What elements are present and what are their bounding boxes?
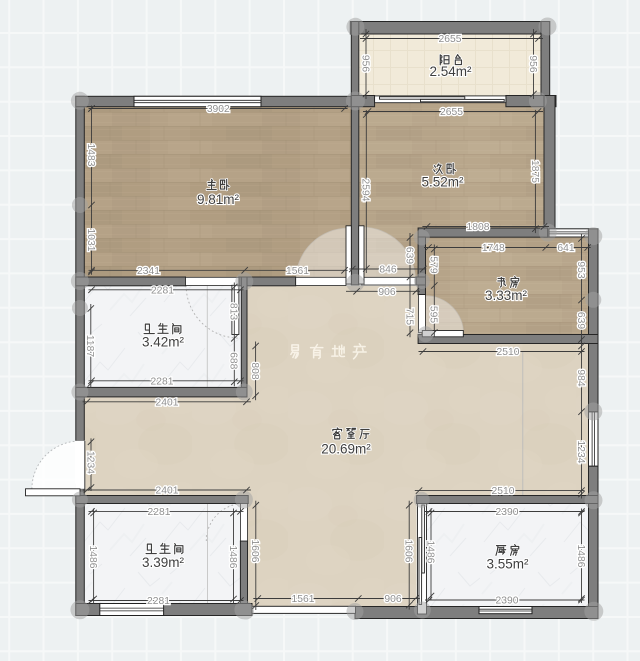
svg-text:3.55m²: 3.55m² — [486, 557, 529, 572]
svg-text:1486: 1486 — [575, 545, 586, 568]
svg-text:579: 579 — [428, 256, 439, 273]
svg-text:3.42m²: 3.42m² — [142, 335, 185, 350]
svg-text:20.69m²: 20.69m² — [321, 442, 371, 457]
svg-text:9.81m²: 9.81m² — [197, 192, 240, 207]
svg-text:2281: 2281 — [147, 596, 170, 607]
svg-text:1234: 1234 — [84, 451, 95, 474]
svg-text:1486: 1486 — [227, 546, 238, 569]
svg-text:2401: 2401 — [156, 397, 179, 408]
svg-text:641: 641 — [557, 243, 574, 254]
svg-text:2281: 2281 — [151, 285, 174, 296]
svg-text:2.54m²: 2.54m² — [429, 64, 472, 79]
svg-text:984: 984 — [575, 369, 586, 386]
svg-text:2655: 2655 — [439, 34, 462, 45]
svg-text:906: 906 — [378, 287, 395, 298]
svg-text:2281: 2281 — [148, 507, 171, 518]
svg-text:1606: 1606 — [249, 540, 260, 563]
svg-text:2401: 2401 — [156, 486, 179, 497]
svg-text:1875: 1875 — [529, 160, 540, 183]
svg-text:1808: 1808 — [467, 222, 490, 233]
svg-text:1486: 1486 — [87, 546, 98, 569]
svg-text:813: 813 — [228, 303, 239, 320]
svg-text:956: 956 — [527, 55, 538, 72]
svg-text:639: 639 — [403, 247, 414, 264]
svg-text:1561: 1561 — [292, 594, 315, 605]
svg-text:688: 688 — [228, 352, 239, 369]
svg-text:953: 953 — [575, 261, 586, 278]
svg-text:2594: 2594 — [360, 179, 371, 202]
svg-text:2390: 2390 — [496, 596, 519, 607]
svg-text:2655: 2655 — [440, 107, 463, 118]
svg-text:3902: 3902 — [207, 104, 230, 115]
svg-text:5.52m²: 5.52m² — [421, 175, 464, 190]
svg-text:715: 715 — [403, 308, 414, 325]
svg-text:2341: 2341 — [137, 266, 160, 277]
svg-text:2281: 2281 — [151, 376, 174, 387]
svg-text:1606: 1606 — [403, 540, 414, 563]
svg-text:846: 846 — [379, 265, 396, 276]
svg-text:3.33m²: 3.33m² — [485, 288, 528, 303]
svg-text:1483: 1483 — [85, 144, 96, 167]
svg-text:1187: 1187 — [84, 335, 95, 357]
svg-text:956: 956 — [359, 55, 370, 72]
svg-text:1031: 1031 — [85, 229, 96, 252]
svg-text:1234: 1234 — [575, 441, 586, 464]
svg-text:2510: 2510 — [492, 486, 515, 497]
svg-text:639: 639 — [575, 312, 586, 329]
svg-text:1486: 1486 — [424, 541, 435, 564]
svg-text:3.39m²: 3.39m² — [142, 555, 185, 570]
svg-text:1748: 1748 — [482, 243, 505, 254]
svg-text:2510: 2510 — [497, 347, 520, 358]
svg-text:808: 808 — [249, 362, 260, 379]
svg-text:2390: 2390 — [496, 507, 519, 518]
svg-text:595: 595 — [428, 306, 439, 323]
svg-text:1561: 1561 — [286, 266, 309, 277]
svg-text:906: 906 — [384, 594, 401, 605]
